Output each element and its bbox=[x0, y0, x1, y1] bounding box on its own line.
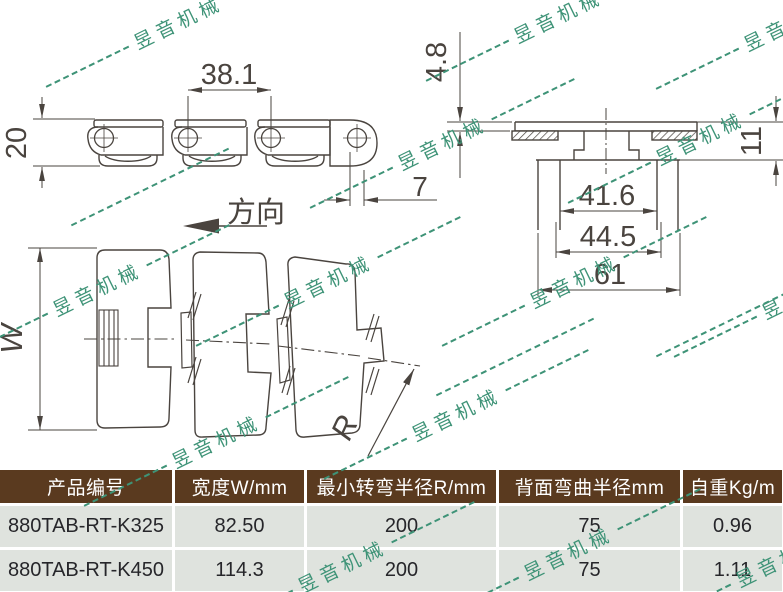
dim-edge-value: 7 bbox=[412, 171, 428, 202]
table-header-min-radius: 最小转弯半径R/mm bbox=[307, 470, 496, 503]
table-cell-product-2: 880TAB-RT-K450 bbox=[0, 550, 172, 591]
direction-label: 方向 bbox=[227, 196, 285, 229]
table-cell-width-2: 114.3 bbox=[175, 550, 304, 591]
dim-width-label: W bbox=[0, 322, 29, 354]
top-view bbox=[84, 250, 420, 437]
table-cell-width-1: 82.50 bbox=[175, 506, 304, 547]
table-header-product: 产品编号 bbox=[0, 470, 172, 503]
spec-table: 产品编号 宽度W/mm 最小转弯半径R/mm 背面弯曲半径mm 自重Kg/m 8… bbox=[0, 470, 783, 591]
hinge-joint-3 bbox=[366, 314, 379, 395]
wear-pad-right bbox=[652, 131, 697, 140]
table-cell-radius-2: 200 bbox=[307, 550, 496, 591]
table-cell-radius-1: 200 bbox=[307, 506, 496, 547]
table-header-width: 宽度W/mm bbox=[175, 470, 304, 503]
dim-pitch-value: 38.1 bbox=[201, 59, 257, 91]
table-header-weight: 自重Kg/m bbox=[683, 470, 782, 503]
dim-section-height-value: 11 bbox=[736, 126, 768, 156]
knuckle-1 bbox=[99, 310, 118, 366]
table-cell-weight-1: 0.96 bbox=[683, 506, 782, 547]
dim-outer-width-value: 61 bbox=[594, 259, 626, 291]
table-cell-back-1: 75 bbox=[499, 506, 680, 547]
table-cell-weight-2: 1.11 bbox=[683, 550, 782, 591]
dim-radius-label: R bbox=[324, 410, 365, 445]
datasheet-page: 38.1 20 7 方向 bbox=[0, 0, 783, 592]
table-cell-back-2: 75 bbox=[499, 550, 680, 591]
table-cell-product-1: 880TAB-RT-K325 bbox=[0, 506, 172, 547]
dim-plate-thickness bbox=[447, 32, 512, 178]
dim-inner-width-value: 41.6 bbox=[579, 180, 635, 212]
technical-drawing: 38.1 20 7 方向 bbox=[0, 0, 783, 470]
hinge-joint-1 bbox=[181, 292, 201, 385]
dim-plate-thickness-value: 4.8 bbox=[421, 42, 453, 82]
dim-height bbox=[33, 97, 100, 188]
dim-mid-width-value: 44.5 bbox=[580, 221, 636, 253]
table-header-back-radius: 背面弯曲半径mm bbox=[499, 470, 680, 503]
side-view bbox=[88, 120, 377, 166]
pins bbox=[90, 124, 371, 152]
wear-pad-left bbox=[512, 131, 558, 140]
dim-height-value: 20 bbox=[1, 127, 33, 159]
